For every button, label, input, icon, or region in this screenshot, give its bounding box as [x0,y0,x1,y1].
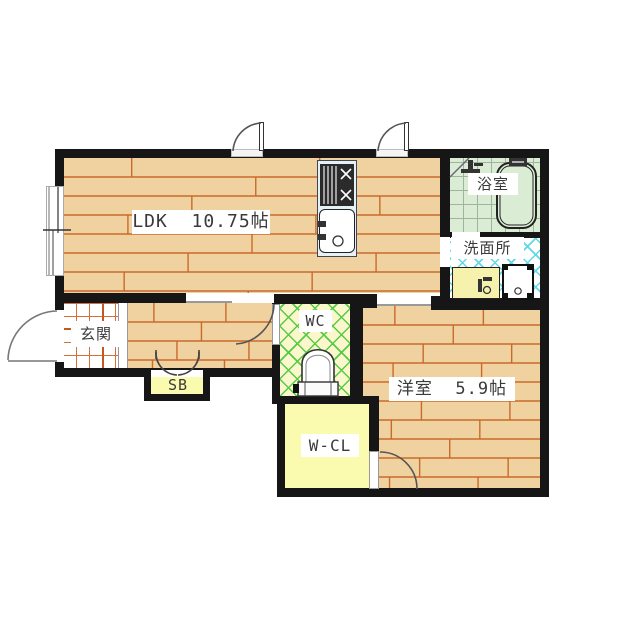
label-shoe-box: SB [162,376,194,394]
floor-plan: LDK 10.75帖 浴室 洗面所 玄関 SB WC 洋室 5.9帖 W-CL [0,0,640,640]
sink-faucet [318,221,343,246]
stove-burners [324,166,351,204]
label-entrance: 玄関 [71,321,121,347]
label-washroom: 洗面所 [451,237,524,259]
label-western-room: 洋室 5.9帖 [389,377,515,401]
washer-pan-marks [503,265,532,298]
label-bathroom: 浴室 [468,173,518,195]
label-walk-in-closet: W-CL [301,434,359,457]
toilet [293,350,338,396]
label-ldk: LDK 10.75帖 [132,210,270,234]
vanity-faucet [478,277,492,294]
label-wc: WC [299,310,332,332]
